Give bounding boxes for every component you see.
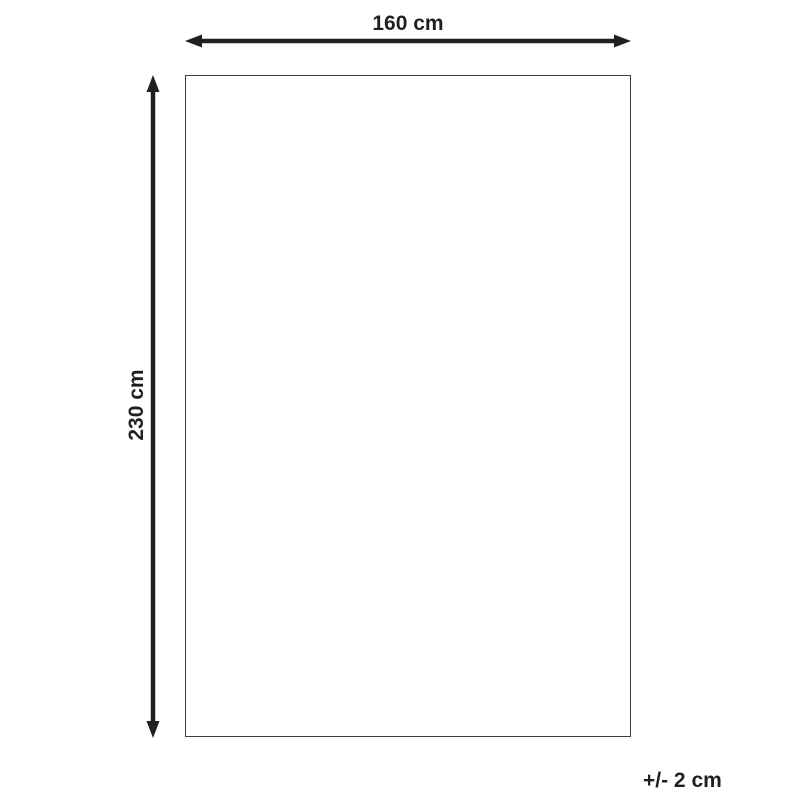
dimension-diagram: 160 cm 230 cm +/- 2 cm bbox=[0, 0, 800, 800]
arrow-down-head-icon bbox=[147, 721, 160, 738]
width-dimension-label: 160 cm bbox=[185, 12, 631, 36]
arrow-left-head-icon bbox=[185, 35, 202, 48]
product-outline-rectangle bbox=[185, 75, 631, 737]
tolerance-label: +/- 2 cm bbox=[643, 769, 722, 793]
height-dimension-label: 230 cm bbox=[125, 369, 149, 440]
arrow-right-head-icon bbox=[614, 35, 631, 48]
arrow-up-head-icon bbox=[147, 75, 160, 92]
